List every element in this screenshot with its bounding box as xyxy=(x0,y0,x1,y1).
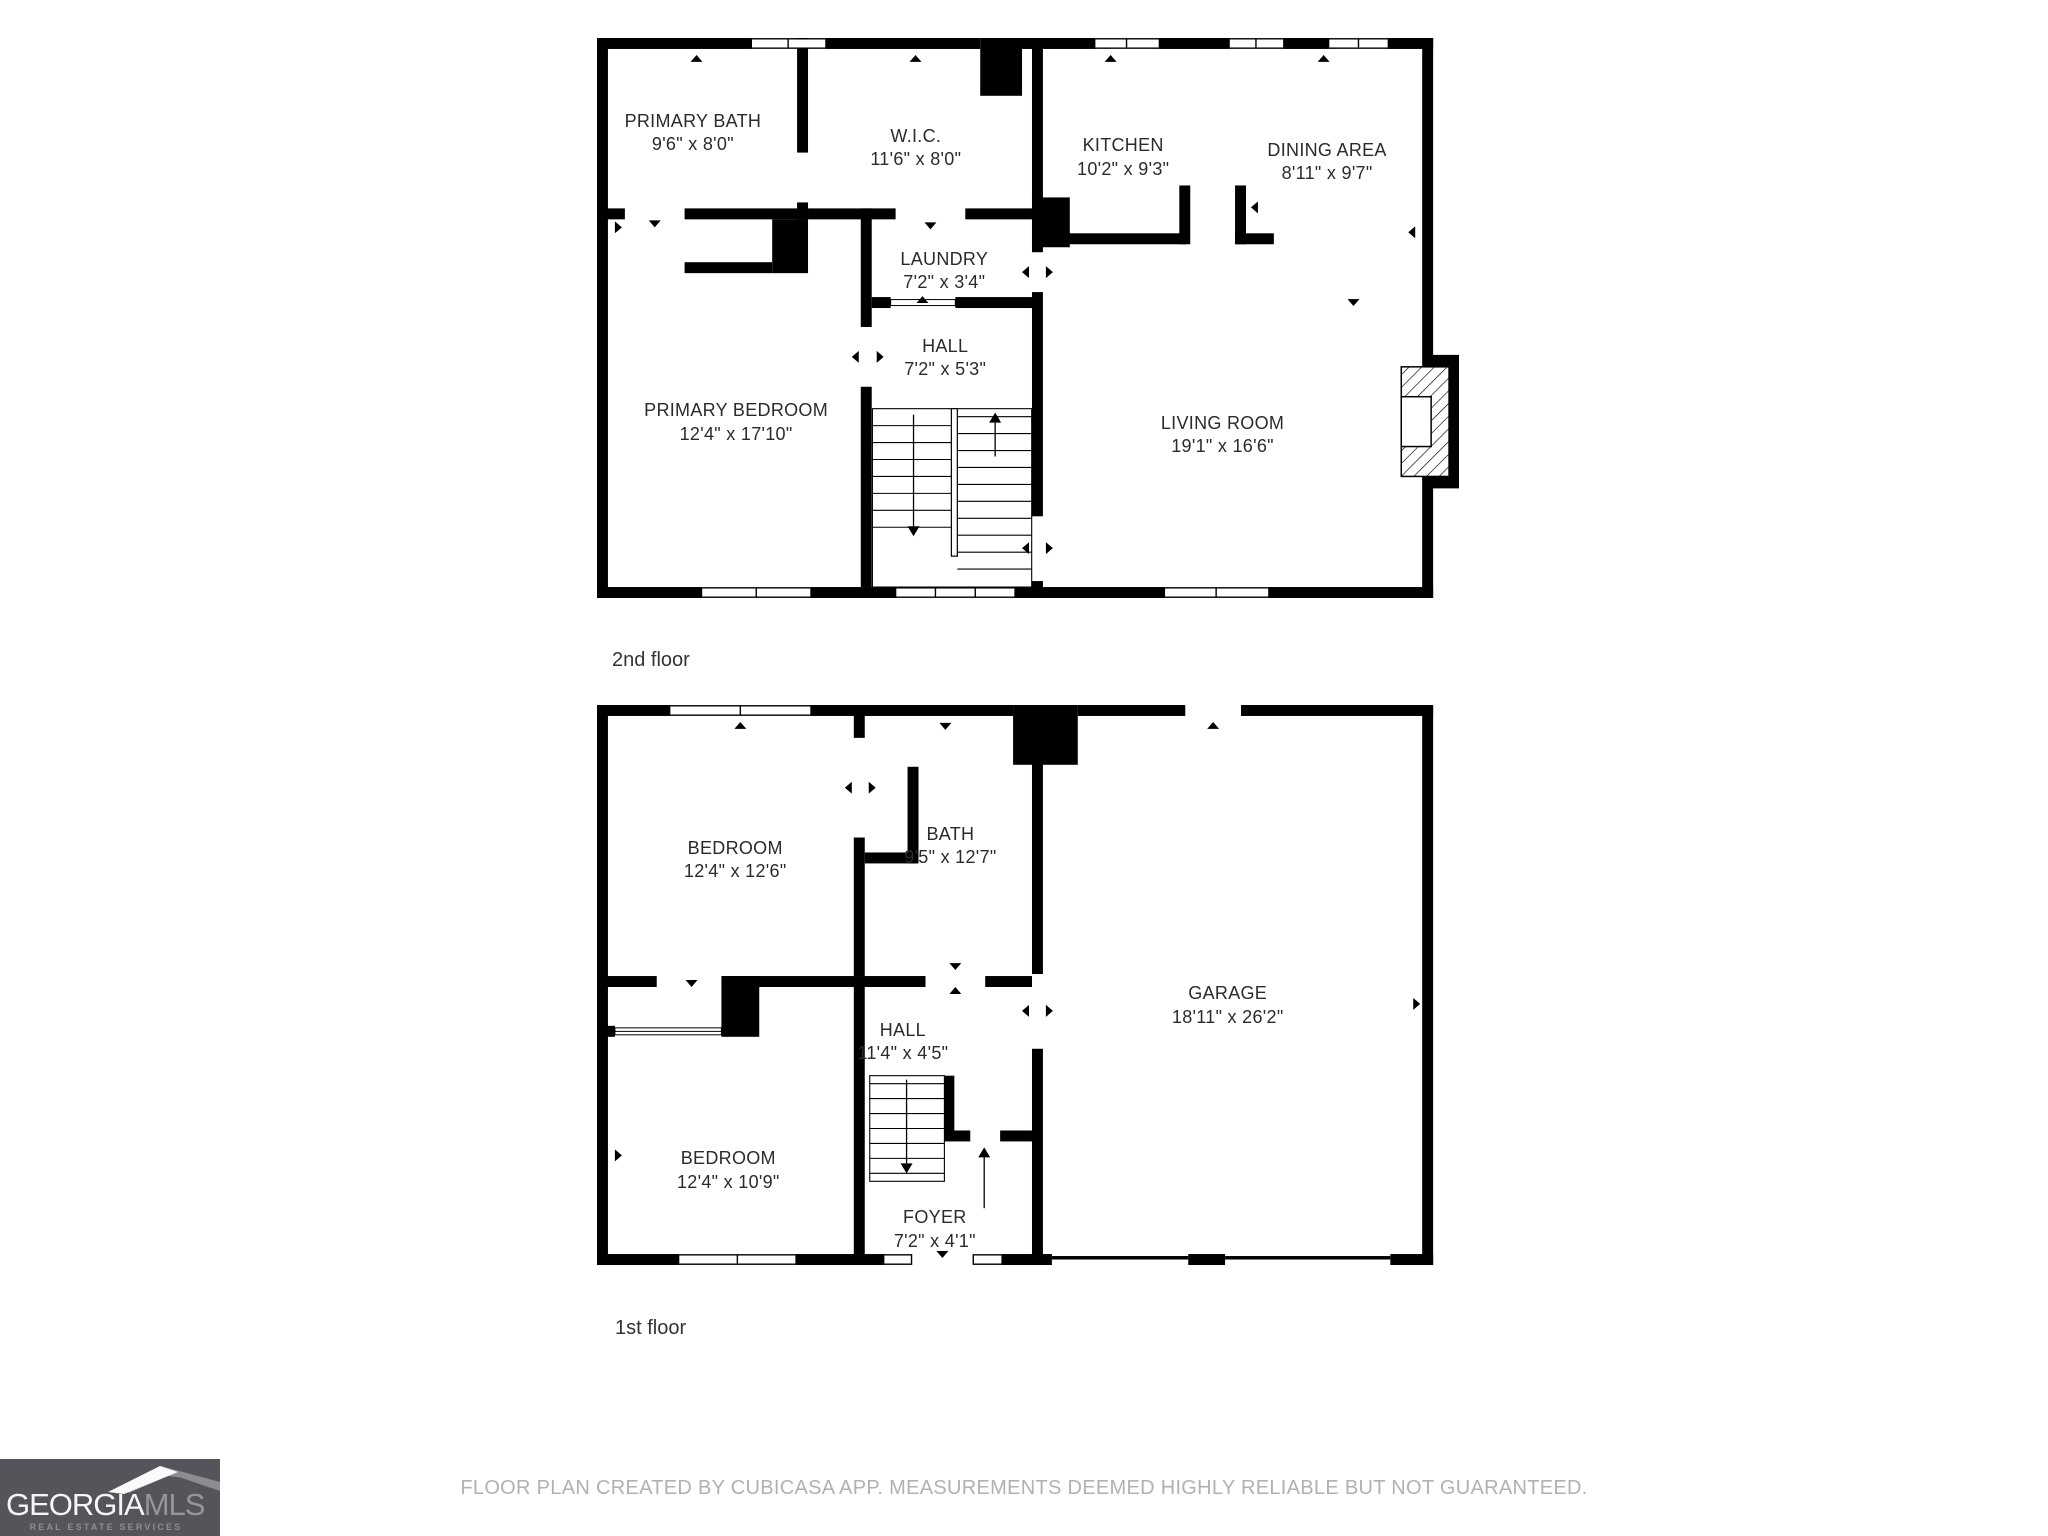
first-floor-label: 1st floor xyxy=(615,1317,686,1340)
room-label-bedroom-2: BEDROOM 12'4" x 10'9" xyxy=(677,1147,780,1194)
fireplace-icon xyxy=(1401,367,1449,477)
room-label-laundry: LAUNDRY 7'2" x 3'4" xyxy=(900,248,988,295)
room-label-primary-bath: PRIMARY BATH 9'6" x 8'0" xyxy=(625,110,762,157)
floor-plan-page: PRIMARY BATH 9'6" x 8'0" W.I.C. 11'6" x … xyxy=(0,0,2048,1536)
room-label-kitchen: KITCHEN 10'2" x 9'3" xyxy=(1077,134,1169,181)
room-label-hall-2f: HALL 7'2" x 5'3" xyxy=(904,335,986,382)
room-label-garage: GARAGE 18'11" x 26'2" xyxy=(1172,982,1284,1029)
room-label-hall-1f: HALL 11'4" x 4'5" xyxy=(857,1019,948,1066)
room-label-wic: W.I.C. 11'6" x 8'0" xyxy=(870,125,961,172)
room-label-living-room: LIVING ROOM 19'1" x 16'6" xyxy=(1161,412,1284,459)
georgia-mls-logo-graphic: GEORGIAMLS REAL ESTATE SERVICES xyxy=(0,1459,220,1536)
room-label-foyer: FOYER 7'2" x 4'1" xyxy=(894,1206,976,1253)
logo-brand-text: GEORGIAMLS xyxy=(6,1487,205,1522)
room-label-bedroom-1: BEDROOM 12'4" x 12'6" xyxy=(684,837,787,884)
first-floor-plan: BEDROOM 12'4" x 12'6" BATH 9'5" x 12'7" … xyxy=(597,705,1461,1265)
stairs-icon xyxy=(872,409,1032,587)
stairs-icon xyxy=(870,1076,990,1209)
logo-tagline: REAL ESTATE SERVICES xyxy=(30,1522,183,1532)
room-label-dining-area: DINING AREA 8'11" x 9'7" xyxy=(1267,139,1386,186)
second-floor-label: 2nd floor xyxy=(612,649,690,672)
georgia-mls-logo: GEORGIAMLS REAL ESTATE SERVICES xyxy=(0,1459,220,1536)
second-floor-plan: PRIMARY BATH 9'6" x 8'0" W.I.C. 11'6" x … xyxy=(597,38,1461,598)
room-label-primary-bedroom: PRIMARY BEDROOM 12'4" x 17'10" xyxy=(644,399,828,446)
disclaimer-text: FLOOR PLAN CREATED BY CUBICASA APP. MEAS… xyxy=(0,1477,2048,1500)
room-label-bath: BATH 9'5" x 12'7" xyxy=(904,823,996,870)
